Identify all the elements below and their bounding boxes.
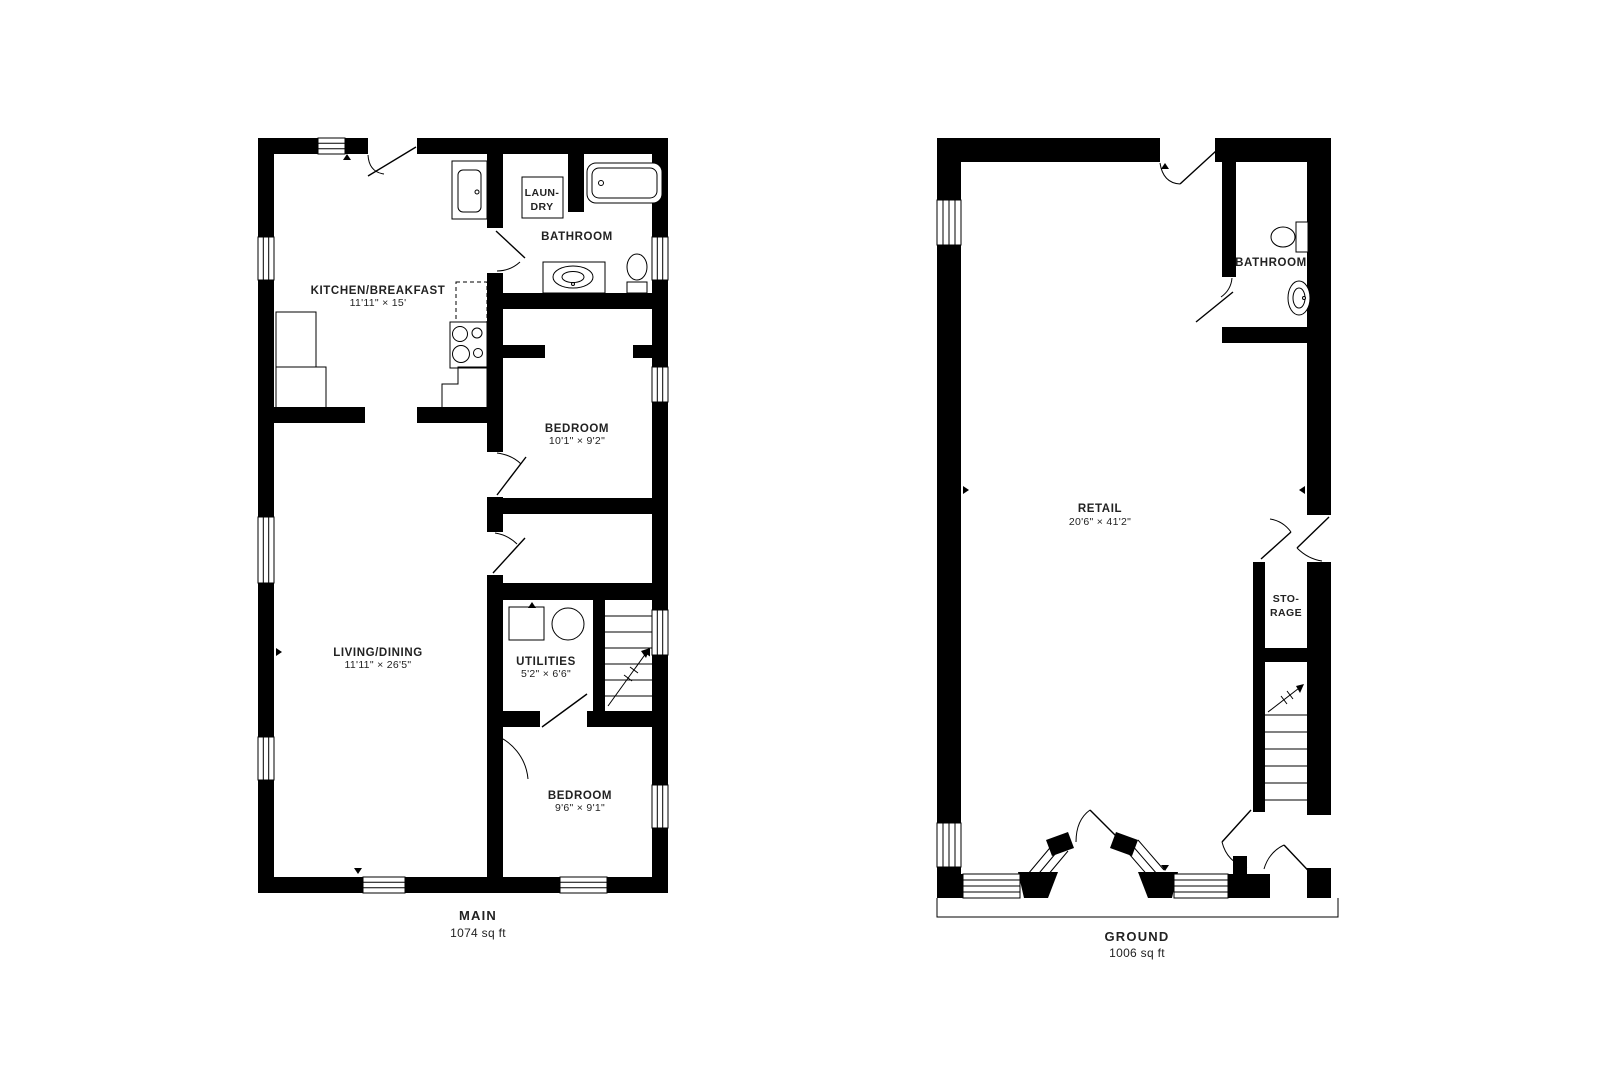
main-walls bbox=[258, 138, 668, 893]
room-label-laundry-1: LAUN- bbox=[525, 187, 560, 199]
vanity-sink bbox=[543, 262, 605, 293]
room-label-storage-1: STO- bbox=[1273, 593, 1300, 605]
bathroom-door bbox=[1196, 278, 1233, 322]
room-label-bathroom: BATHROOM bbox=[541, 231, 613, 243]
window bbox=[937, 823, 961, 867]
bathroom-door bbox=[496, 231, 525, 271]
side-door-upper bbox=[1297, 517, 1329, 561]
ground-stairs bbox=[1265, 684, 1307, 800]
window bbox=[963, 874, 1020, 898]
room-label-kitchen: KITCHEN/BREAKFAST bbox=[311, 285, 446, 297]
room-dims-bedroom1: 10'1" × 9'2" bbox=[549, 435, 605, 447]
plan-area-main: 1074 sq ft bbox=[450, 926, 506, 940]
ground-walls bbox=[937, 138, 1331, 898]
washer bbox=[509, 607, 544, 640]
plan-title-ground: GROUND bbox=[1105, 929, 1170, 944]
window bbox=[363, 877, 405, 893]
room-label-living: LIVING/DINING bbox=[333, 647, 423, 659]
floorplan-canvas: KITCHEN/BREAKFAST 11'11" × 15' LAUN- DRY… bbox=[0, 0, 1620, 1080]
window bbox=[652, 367, 668, 402]
plan-area-ground: 1006 sq ft bbox=[1109, 946, 1165, 960]
floor-plan-main: KITCHEN/BREAKFAST 11'11" × 15' LAUN- DRY… bbox=[258, 138, 668, 940]
hall-door bbox=[493, 533, 525, 573]
window bbox=[258, 737, 274, 780]
storefront-posts bbox=[1018, 832, 1178, 898]
entry-door bbox=[368, 147, 416, 176]
main-windows bbox=[258, 138, 668, 893]
sink bbox=[1288, 281, 1310, 315]
boiler bbox=[552, 608, 584, 640]
floor-plan-ground: RETAIL 20'6" × 41'2" BATHROOM STO- RAGE … bbox=[937, 138, 1338, 960]
room-label-retail: RETAIL bbox=[1078, 503, 1122, 515]
stove bbox=[450, 322, 487, 368]
room-dims-kitchen: 11'11" × 15' bbox=[350, 297, 407, 309]
room-label-ground-bathroom: BATHROOM bbox=[1235, 257, 1307, 269]
window bbox=[258, 517, 274, 583]
storage-door bbox=[1261, 519, 1291, 559]
floorplan-drawing: KITCHEN/BREAKFAST 11'11" × 15' LAUN- DRY… bbox=[0, 0, 1620, 1080]
plan-title-main: MAIN bbox=[459, 908, 497, 923]
main-entrance-door bbox=[1160, 151, 1216, 184]
fridge bbox=[456, 282, 487, 322]
room-label-laundry-2: DRY bbox=[531, 201, 554, 213]
window bbox=[318, 138, 345, 154]
room-dims-retail: 20'6" × 41'2" bbox=[1069, 516, 1131, 528]
window bbox=[652, 785, 668, 828]
room-dims-bedroom2: 9'6" × 9'1" bbox=[555, 802, 605, 814]
sidewalk-outline bbox=[937, 898, 1338, 917]
window bbox=[1174, 874, 1228, 898]
window bbox=[258, 237, 274, 280]
room-dims-utilities: 5'2" × 6'6" bbox=[521, 668, 571, 680]
room-dims-living: 11'11" × 26'5" bbox=[345, 659, 412, 671]
room-label-bedroom1: BEDROOM bbox=[545, 423, 609, 435]
room-label-utilities: UTILITIES bbox=[516, 656, 576, 668]
stairs-arrowhead bbox=[1296, 684, 1304, 693]
toilet bbox=[627, 254, 647, 293]
bathtub bbox=[587, 163, 662, 203]
window bbox=[652, 237, 668, 280]
room-label-bedroom2: BEDROOM bbox=[548, 790, 612, 802]
toilet bbox=[1271, 222, 1308, 252]
window bbox=[652, 610, 668, 655]
ground-windows bbox=[937, 200, 1228, 898]
room-label-storage-2: RAGE bbox=[1270, 607, 1302, 619]
kitchen-counter bbox=[442, 367, 487, 410]
main-bathroom-fixtures bbox=[522, 163, 662, 293]
kitchen-cabinet bbox=[276, 312, 316, 367]
main-stairs bbox=[605, 616, 652, 706]
window bbox=[560, 877, 607, 893]
kitchen-sink bbox=[452, 161, 487, 219]
window bbox=[937, 200, 961, 245]
utilities-fixtures bbox=[509, 607, 584, 640]
bedroom1-door bbox=[497, 453, 526, 495]
utilities-door bbox=[492, 694, 587, 779]
